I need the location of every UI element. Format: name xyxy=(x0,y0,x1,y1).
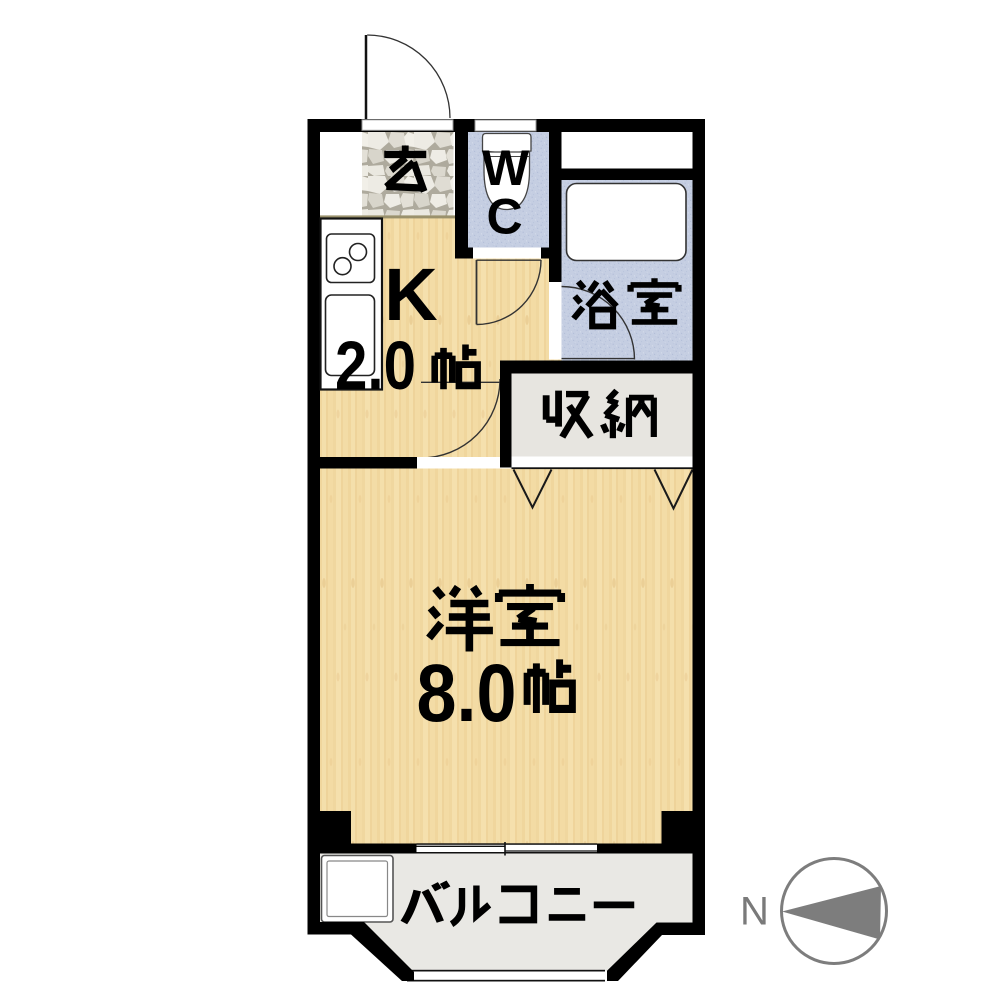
svg-text:W: W xyxy=(482,140,530,196)
svg-text:N: N xyxy=(740,890,769,934)
svg-text:8.0: 8.0 xyxy=(417,648,517,739)
svg-text:K: K xyxy=(384,253,437,336)
svg-text:2.0: 2.0 xyxy=(335,327,416,404)
svg-text:C: C xyxy=(486,189,522,245)
